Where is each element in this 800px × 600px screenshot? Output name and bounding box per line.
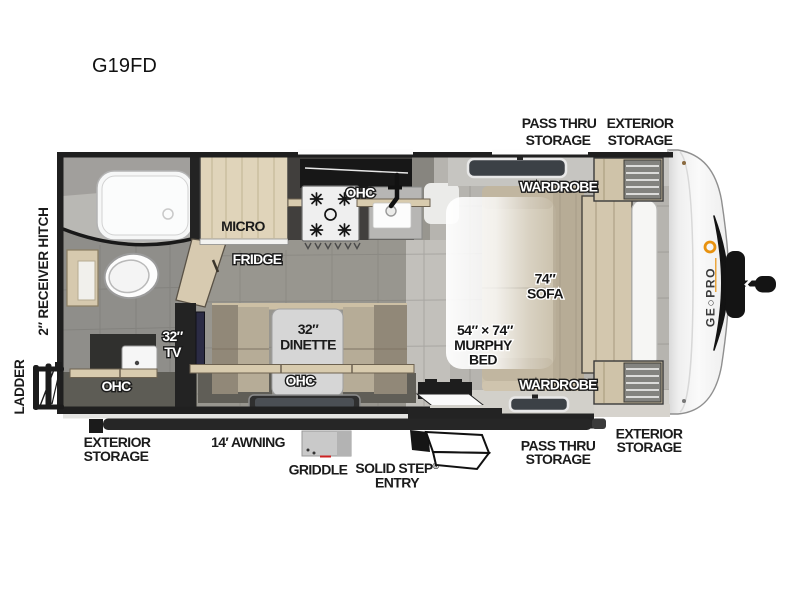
svg-text:MICRO: MICRO — [221, 218, 265, 234]
svg-text:DINETTE: DINETTE — [280, 337, 336, 353]
svg-text:STORAGE: STORAGE — [617, 439, 682, 455]
svg-text:EXTERIOR: EXTERIOR — [607, 115, 674, 131]
svg-text:FRIDGE: FRIDGE — [233, 251, 282, 267]
svg-text:74″: 74″ — [535, 271, 557, 287]
svg-text:ENTRY: ENTRY — [375, 475, 420, 491]
svg-text:G19FD: G19FD — [92, 55, 157, 77]
svg-text:WARDROBE: WARDROBE — [520, 179, 598, 195]
svg-text:LADDER: LADDER — [12, 359, 27, 414]
svg-text:2″ RECEIVER HITCH: 2″ RECEIVER HITCH — [36, 207, 51, 335]
svg-text:32″: 32″ — [162, 328, 183, 344]
svg-text:PASS THRU: PASS THRU — [522, 115, 597, 131]
svg-text:GRIDDLE: GRIDDLE — [289, 462, 348, 478]
svg-text:SOFA: SOFA — [527, 286, 564, 302]
svg-text:14′ AWNING: 14′ AWNING — [211, 434, 286, 450]
svg-text:TV: TV — [164, 344, 182, 360]
svg-text:WARDROBE: WARDROBE — [519, 377, 597, 393]
svg-text:STORAGE: STORAGE — [526, 132, 591, 148]
svg-text:OHC: OHC — [101, 378, 131, 394]
svg-text:OHC: OHC — [345, 185, 375, 201]
svg-text:OHC: OHC — [285, 373, 315, 389]
svg-text:54″ × 74″: 54″ × 74″ — [457, 322, 514, 338]
svg-text:STORAGE: STORAGE — [526, 451, 591, 467]
svg-text:32″: 32″ — [298, 321, 319, 337]
svg-text:BED: BED — [469, 352, 497, 368]
svg-text:STORAGE: STORAGE — [84, 448, 149, 464]
svg-text:STORAGE: STORAGE — [608, 132, 673, 148]
